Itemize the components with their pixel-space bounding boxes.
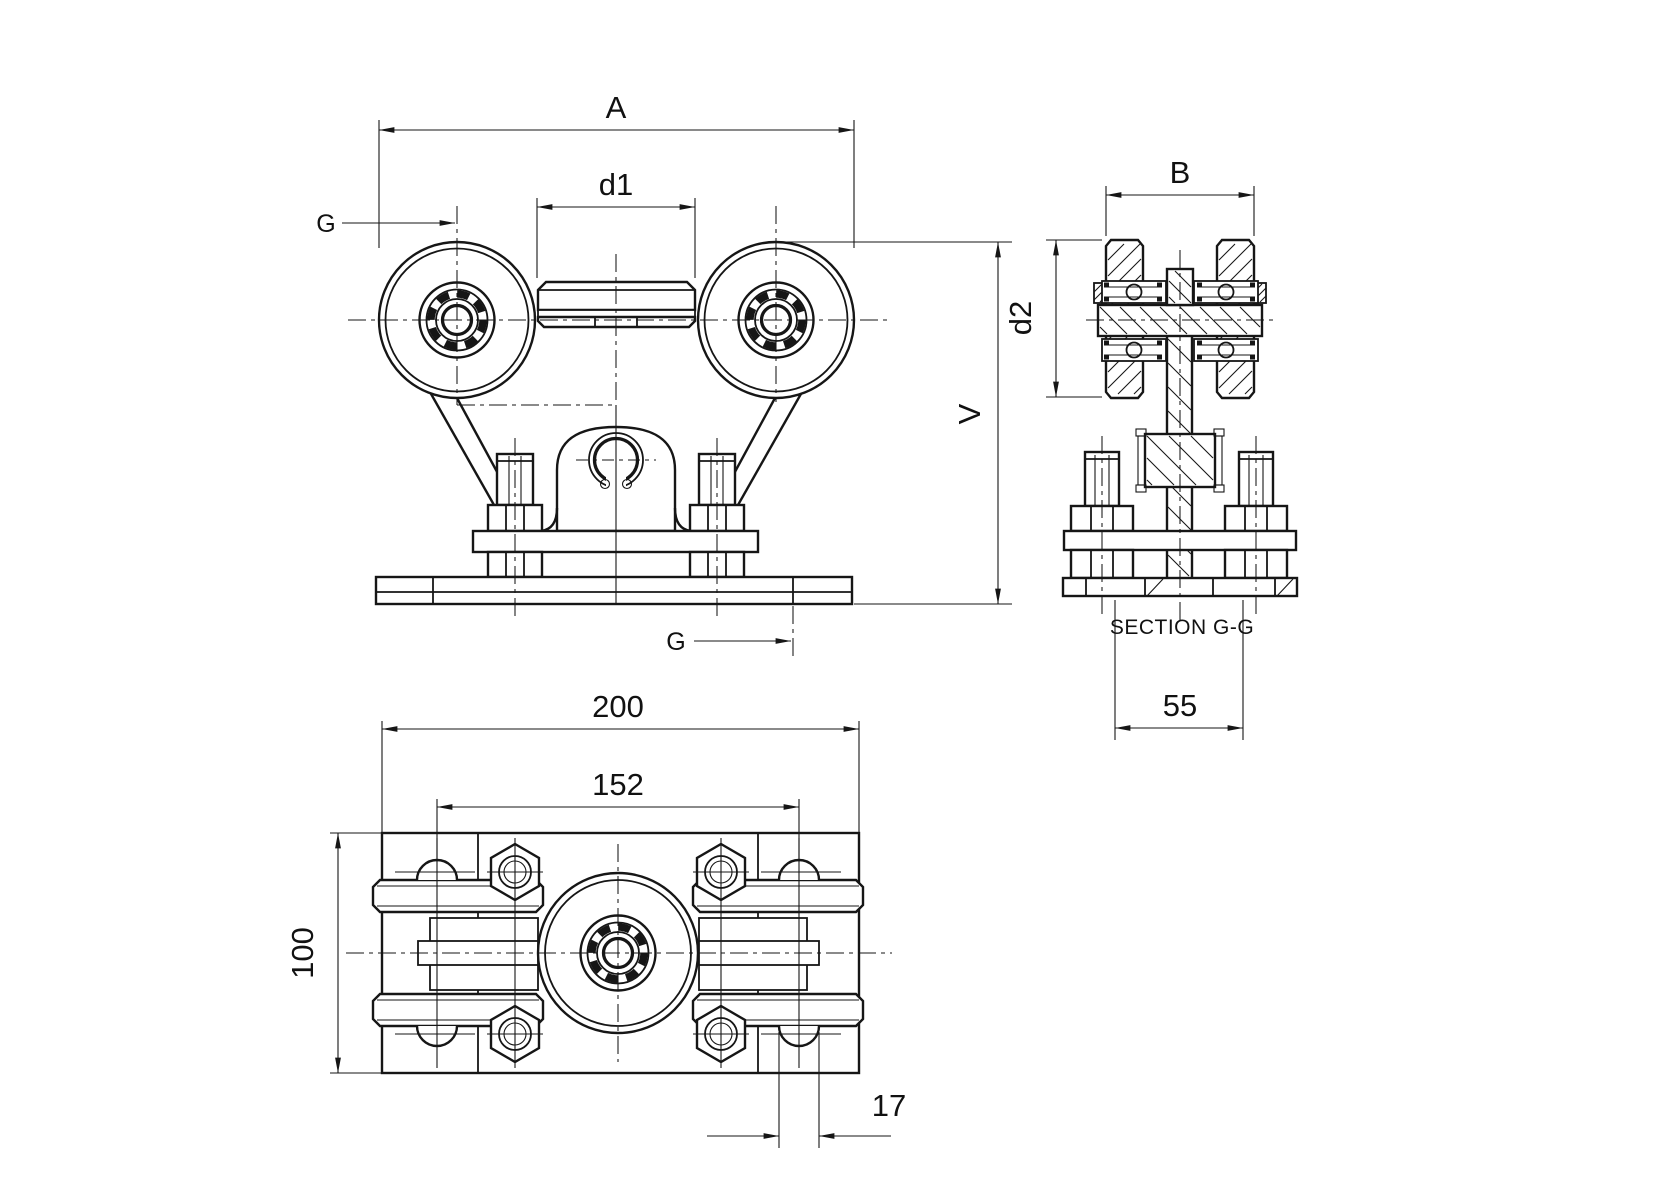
section-title: SECTION G-G bbox=[1110, 616, 1254, 639]
cut-label-g-bottom: G bbox=[666, 628, 685, 656]
plan-view: 200 152 100 17 bbox=[285, 689, 906, 1148]
cut-arrow-g-bottom: G bbox=[666, 628, 791, 656]
cad-drawing-page: A d1 G G V bbox=[0, 0, 1680, 1188]
drawing-canvas: A d1 G G V bbox=[0, 0, 1680, 1188]
cut-arrow-g-top: G bbox=[316, 210, 455, 238]
dim-label-d2: d2 bbox=[1003, 301, 1038, 335]
dim-label-152: 152 bbox=[592, 767, 644, 802]
section-view: B d2 55 SECTION G-G bbox=[1003, 155, 1297, 740]
cut-label-g-top: G bbox=[316, 210, 335, 238]
dimension-d2: d2 bbox=[1003, 240, 1102, 397]
dim-label-a: A bbox=[606, 90, 627, 125]
dim-label-100: 100 bbox=[285, 927, 320, 979]
dim-label-d1: d1 bbox=[599, 167, 633, 202]
dim-label-200: 200 bbox=[592, 689, 644, 724]
front-view: A d1 G G V bbox=[316, 90, 1012, 658]
dimension-b: B bbox=[1106, 155, 1254, 236]
base-plate bbox=[376, 577, 852, 604]
dim-label-55: 55 bbox=[1163, 688, 1197, 723]
dimension-200: 200 bbox=[382, 689, 859, 833]
dim-label-v: V bbox=[952, 403, 987, 424]
dim-label-17: 17 bbox=[872, 1088, 906, 1123]
dim-label-b: B bbox=[1170, 155, 1191, 190]
